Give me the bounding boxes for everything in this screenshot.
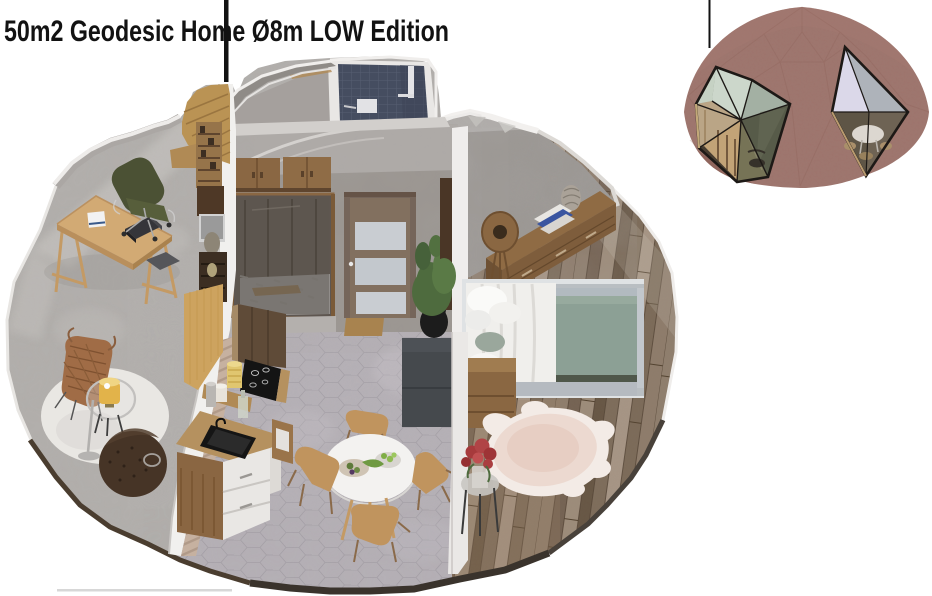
svg-text:50m2 Geodesic Home Ø8m LOW Edi: 50m2 Geodesic Home Ø8m LOW Edition	[4, 15, 449, 48]
